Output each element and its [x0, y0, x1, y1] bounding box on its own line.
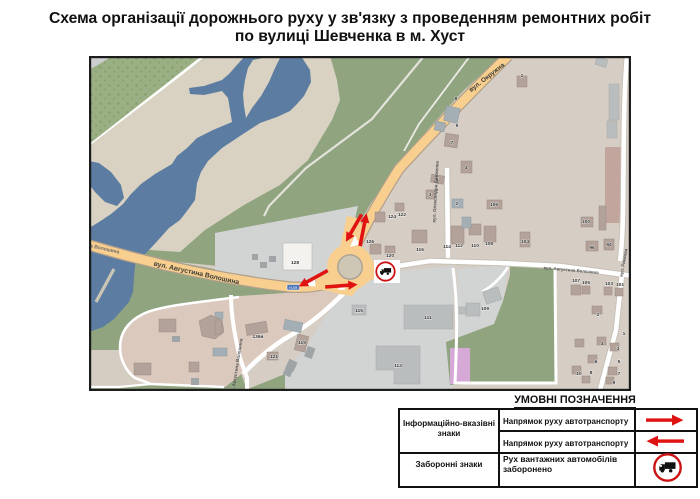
svg-text:116: 116	[416, 247, 424, 253]
svg-text:10: 10	[576, 371, 582, 377]
svg-text:106: 106	[490, 202, 498, 208]
svg-text:119: 119	[298, 340, 306, 346]
svg-text:113: 113	[394, 363, 402, 369]
svg-text:3: 3	[429, 192, 432, 198]
svg-text:1: 1	[521, 73, 524, 79]
svg-text:101: 101	[616, 282, 624, 288]
svg-text:103: 103	[605, 281, 613, 287]
svg-text:5: 5	[618, 359, 621, 365]
svg-text:9: 9	[613, 380, 616, 386]
svg-text:2: 2	[597, 312, 600, 318]
svg-text:Н-09: Н-09	[289, 286, 297, 290]
svg-text:128: 128	[291, 260, 299, 266]
svg-text:121: 121	[270, 354, 278, 360]
svg-text:111: 111	[424, 315, 432, 321]
svg-text:6: 6	[595, 359, 598, 365]
svg-text:4: 4	[465, 165, 468, 171]
svg-text:124: 124	[388, 214, 396, 220]
svg-text:104: 104	[521, 239, 529, 245]
svg-text:126: 126	[366, 239, 374, 245]
svg-text:110: 110	[471, 243, 479, 249]
svg-text:7: 7	[618, 371, 621, 377]
svg-text:107: 107	[572, 278, 580, 284]
svg-text:3: 3	[617, 346, 620, 352]
svg-text:9: 9	[456, 123, 459, 129]
svg-text:4: 4	[601, 341, 604, 347]
svg-text:136в: 136в	[253, 334, 264, 340]
svg-text:2: 2	[456, 201, 459, 207]
svg-text:120: 120	[386, 253, 394, 259]
svg-text:8: 8	[590, 370, 593, 376]
svg-text:100: 100	[582, 219, 590, 225]
svg-text:115: 115	[355, 308, 363, 314]
svg-text:94: 94	[606, 242, 612, 248]
svg-text:108: 108	[485, 241, 493, 247]
svg-text:114: 114	[443, 244, 451, 250]
svg-text:122: 122	[398, 212, 406, 218]
svg-text:112: 112	[455, 243, 463, 249]
svg-text:7: 7	[451, 140, 454, 146]
svg-text:96: 96	[589, 245, 595, 251]
svg-text:109: 109	[481, 306, 489, 312]
svg-text:1: 1	[623, 331, 626, 337]
svg-text:105: 105	[582, 280, 590, 286]
svg-text:8: 8	[455, 96, 458, 102]
